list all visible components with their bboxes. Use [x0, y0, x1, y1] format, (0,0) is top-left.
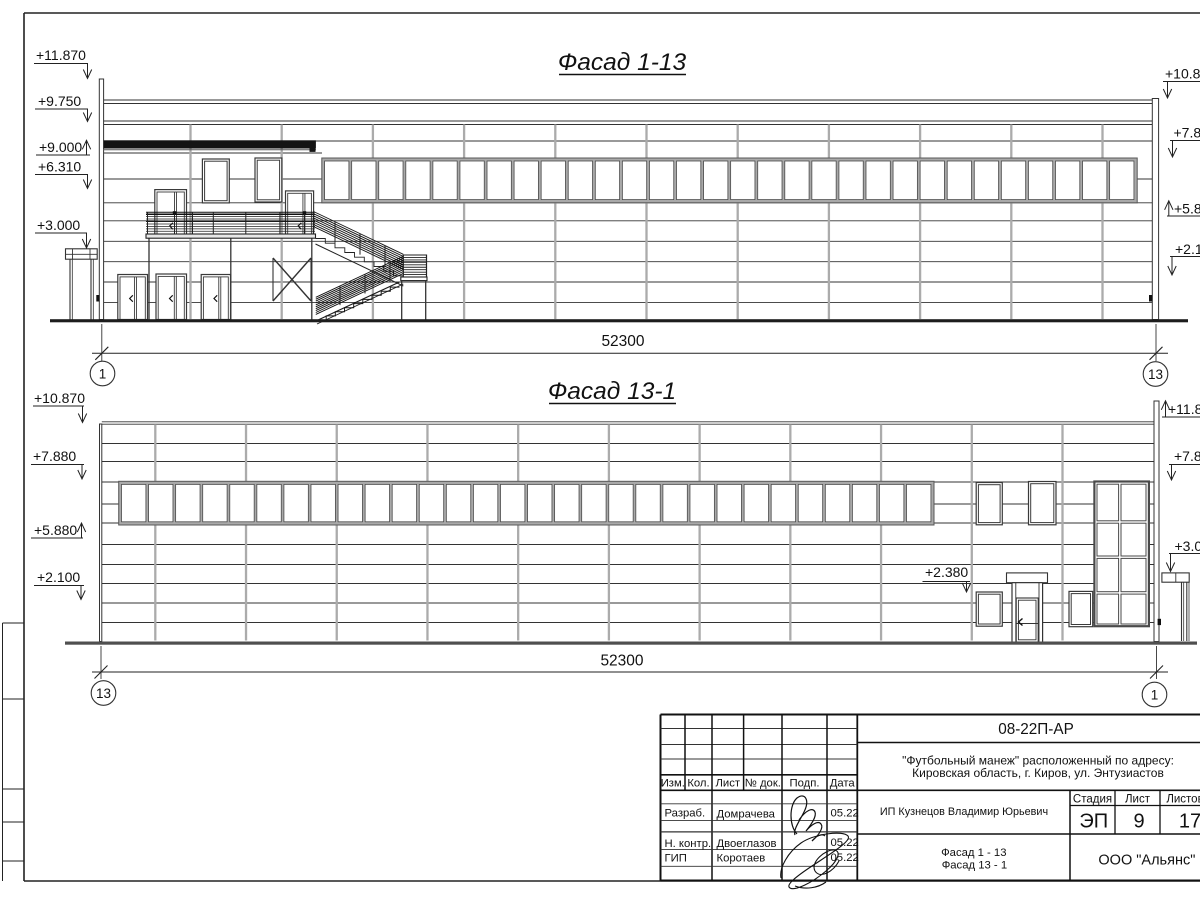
svg-text:ЭП: ЭП — [1079, 811, 1108, 833]
svg-text:+9.000: +9.000 — [39, 139, 82, 155]
svg-text:52300: 52300 — [600, 653, 643, 670]
svg-text:+9.750: +9.750 — [38, 93, 81, 109]
svg-text:52300: 52300 — [601, 333, 644, 350]
svg-text:Стадия: Стадия — [1073, 794, 1112, 806]
svg-text:13: 13 — [96, 686, 111, 701]
svg-text:+7.880: +7.880 — [33, 448, 76, 464]
svg-text:1: 1 — [99, 366, 107, 381]
svg-text:Подп.: Подп. — [789, 778, 819, 790]
svg-text:Кол.: Кол. — [687, 778, 709, 790]
svg-text:+3.000: +3.000 — [37, 217, 80, 233]
svg-text:9: 9 — [1133, 811, 1144, 833]
svg-text:Двоеглазов: Двоеглазов — [717, 838, 777, 850]
svg-text:Дата: Дата — [830, 778, 856, 790]
svg-text:+6.310: +6.310 — [38, 159, 81, 175]
svg-text:+11.870: +11.870 — [36, 47, 86, 63]
svg-text:ГИП: ГИП — [665, 853, 687, 865]
svg-text:Домрачева: Домрачева — [717, 809, 776, 821]
svg-text:+10.870: +10.870 — [1165, 66, 1200, 82]
svg-text:Н. контр.: Н. контр. — [665, 838, 712, 850]
svg-text:+7.880: +7.880 — [1174, 125, 1200, 141]
svg-text:+3.000: +3.000 — [1175, 538, 1200, 554]
svg-text:08-22П-АР: 08-22П-АР — [998, 721, 1074, 738]
svg-text:+2.100: +2.100 — [37, 569, 80, 585]
svg-text:+11.870: +11.870 — [1168, 401, 1200, 417]
svg-text:Коротаев: Коротаев — [717, 853, 766, 865]
svg-text:+7.880: +7.880 — [1174, 448, 1200, 464]
svg-text:Фасад 1-13: Фасад 1-13 — [558, 49, 687, 76]
svg-text:Листов: Листов — [1166, 794, 1200, 806]
svg-text:Фасад 13 - 1: Фасад 13 - 1 — [942, 860, 1007, 872]
svg-text:Фасад 1 - 13: Фасад 1 - 13 — [941, 847, 1006, 859]
svg-text:ООО "Альянс": ООО "Альянс" — [1098, 853, 1195, 869]
svg-text:13: 13 — [1148, 367, 1163, 382]
svg-text:Лист: Лист — [716, 778, 741, 790]
svg-text:1: 1 — [1151, 687, 1159, 702]
svg-text:17: 17 — [1179, 811, 1200, 833]
svg-text:+5.840: +5.840 — [1174, 201, 1200, 217]
svg-text:+5.880: +5.880 — [34, 522, 77, 538]
svg-text:05.22: 05.22 — [831, 808, 859, 820]
svg-text:№ док.: № док. — [745, 778, 781, 790]
svg-text:Лист: Лист — [1125, 794, 1151, 806]
svg-text:ИП Кузнецов Владимир Юрьевич: ИП Кузнецов Владимир Юрьевич — [880, 806, 1048, 818]
svg-text:Фасад 13-1: Фасад 13-1 — [548, 378, 676, 405]
svg-text:Кировская область, г. Киров, у: Кировская область, г. Киров, ул. Энтузиа… — [912, 766, 1164, 780]
svg-text:+2.100: +2.100 — [1175, 241, 1200, 257]
svg-text:+2.380: +2.380 — [925, 564, 968, 580]
svg-text:+10.870: +10.870 — [34, 390, 85, 406]
svg-text:Разраб.: Разраб. — [665, 808, 706, 820]
svg-text:Изм.: Изм. — [661, 778, 685, 790]
